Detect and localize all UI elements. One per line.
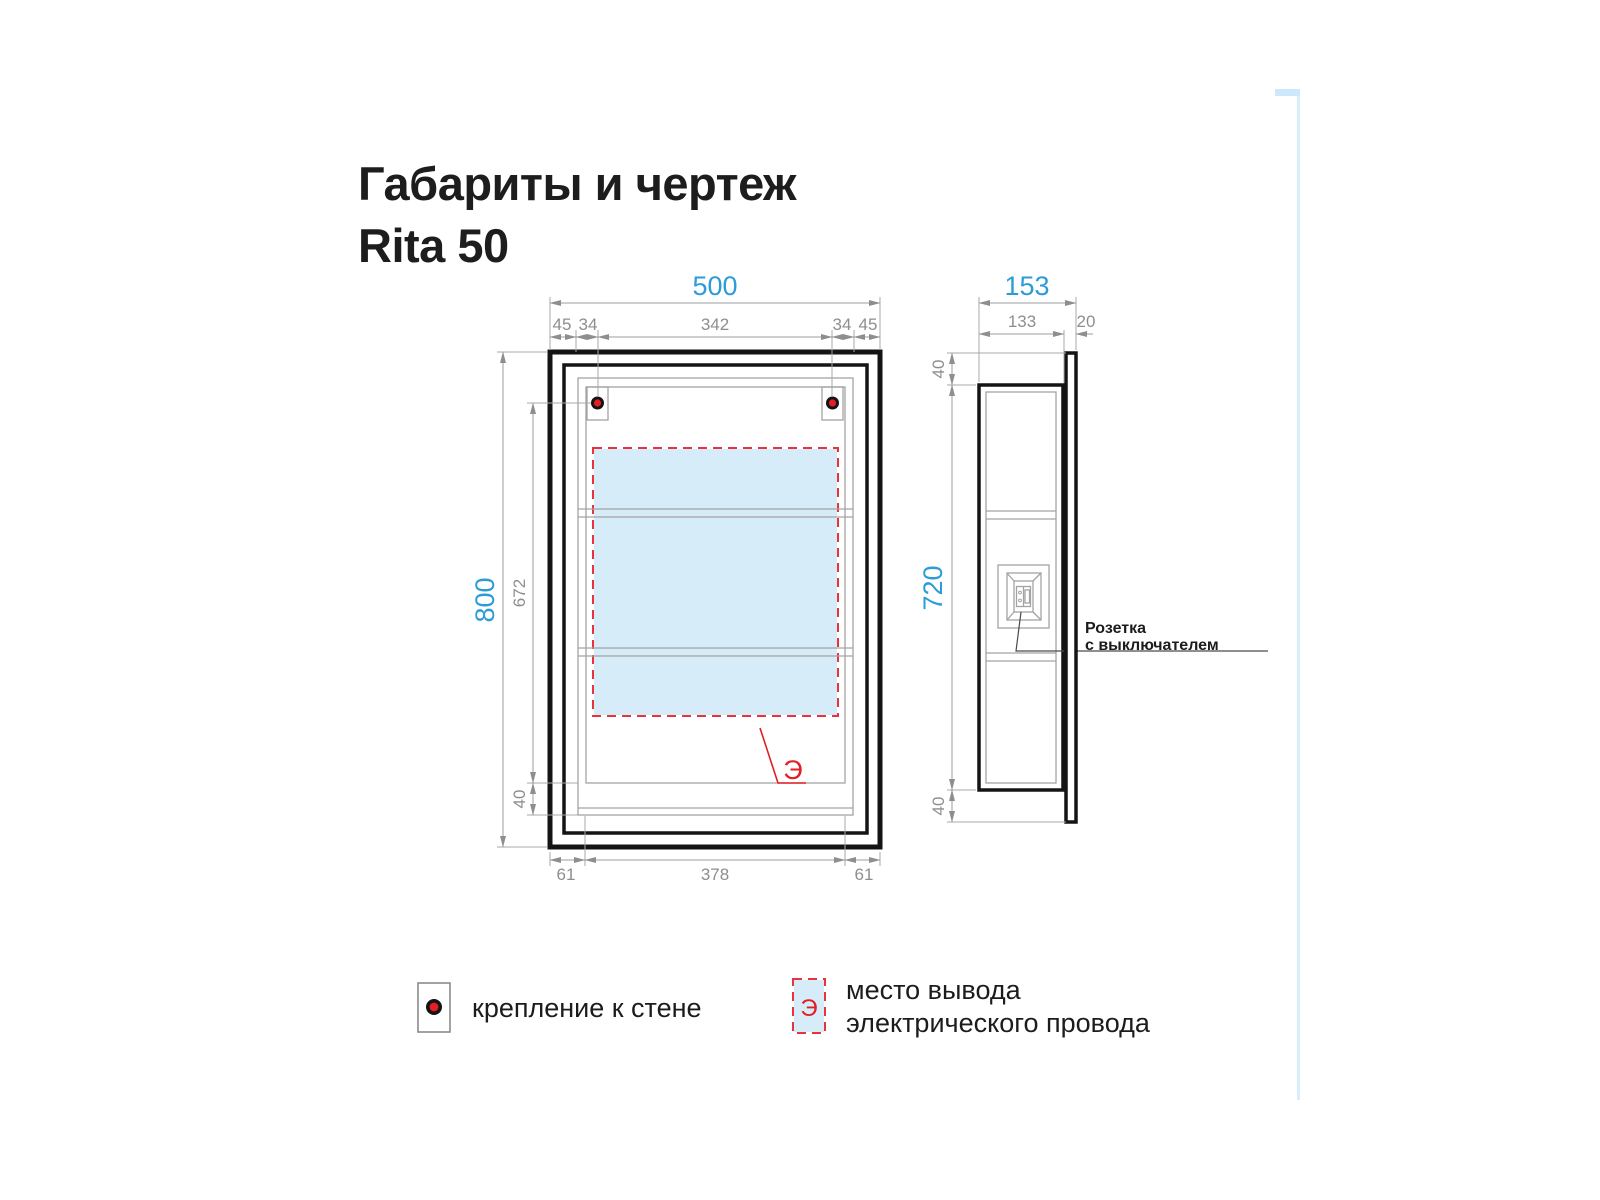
page-title-line1: Габариты и чертеж	[358, 157, 797, 210]
page-title-line2: Rita 50	[358, 219, 509, 272]
dim-front-top-45-right: 45	[859, 315, 878, 334]
dim-front-top-342: 342	[701, 315, 729, 334]
dim-front-height: 800	[470, 577, 500, 622]
dim-side-133: 133	[1008, 312, 1036, 331]
dim-side-height: 720	[918, 565, 948, 610]
dim-side-40-top: 40	[929, 360, 948, 379]
dim-front-width: 500	[692, 271, 737, 301]
dim-front-top-45-left: 45	[553, 315, 572, 334]
technical-drawing: Габариты и чертеж Rita 50	[0, 0, 1600, 1200]
dim-front-378: 378	[701, 865, 729, 884]
electric-outlet-area	[593, 448, 838, 716]
dim-front-top-34-left: 34	[579, 315, 598, 334]
page-accent	[1275, 89, 1300, 1100]
legend: крепление к стене Э место вывода электри…	[418, 975, 1151, 1038]
socket-label-line1: Розетка	[1085, 620, 1146, 637]
dim-front-top-34-right: 34	[833, 315, 852, 334]
dim-side-20: 20	[1077, 312, 1096, 331]
legend-electric-mark: Э	[800, 995, 817, 1022]
front-view: Э 500 45 34 342 34 45	[470, 271, 880, 884]
dim-front-672: 672	[510, 579, 529, 607]
dim-front-40-bottom: 40	[510, 790, 529, 809]
side-dimensions-top: 153 133 20	[979, 271, 1095, 383]
electric-mark-label: Э	[783, 755, 802, 785]
side-body-outline	[979, 385, 1063, 790]
dim-side-depth: 153	[1004, 271, 1049, 301]
legend-wall-mount: крепление к стене	[418, 983, 702, 1032]
legend-wall-mount-label: крепление к стене	[472, 993, 702, 1023]
accent-line	[1297, 96, 1300, 1100]
legend-electric-label-line1: место вывода	[846, 975, 1022, 1005]
electric-area-fill	[594, 449, 837, 715]
dim-front-61-left: 61	[557, 865, 576, 884]
legend-electric-label-line2: электрического провода	[846, 1008, 1151, 1038]
drawing-canvas: Габариты и чертеж Rita 50	[0, 0, 1600, 1200]
dim-side-40-bottom: 40	[929, 797, 948, 816]
side-view: Розетка с выключателем 153 133 20 40	[918, 271, 1268, 822]
dim-front-61-right: 61	[855, 865, 874, 884]
accent-bar	[1275, 89, 1300, 96]
page-title: Габариты и чертеж Rita 50	[358, 157, 797, 272]
legend-electric: Э место вывода электрического провода	[793, 975, 1151, 1038]
socket-label-line2: с выключателем	[1085, 637, 1219, 654]
side-door-panel	[1066, 353, 1076, 822]
